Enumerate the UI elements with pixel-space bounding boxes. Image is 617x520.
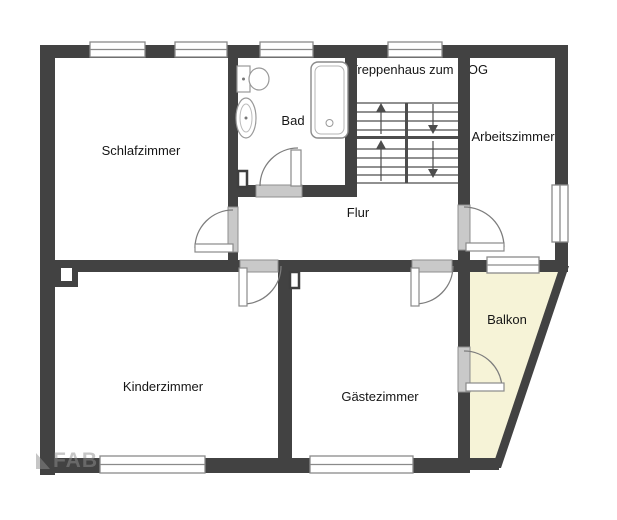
window-kinderzimmer: [100, 456, 205, 473]
staircase: [357, 103, 458, 183]
wall-center-right-column: [458, 45, 470, 473]
floorplan: Schlafzimmer Bad Treppenhaus zum 1.OG Ar…: [0, 0, 617, 520]
door-panel: [256, 185, 302, 197]
room-label-arbeitszimmer: Arbeitszimmer: [471, 129, 555, 144]
room-label-balkon: Balkon: [487, 312, 527, 327]
door-leaf: [291, 150, 301, 186]
door-kinderzimmer: [239, 260, 281, 306]
arrow-up-icon: [376, 103, 386, 181]
window-schlafzimmer-1: [90, 42, 145, 57]
wall-left: [40, 45, 55, 475]
door-leaf: [411, 268, 419, 306]
sink-icon: [236, 98, 256, 138]
door-arc: [195, 210, 233, 248]
wall-balcony-bottom: [467, 458, 499, 470]
window-treppenhaus: [388, 42, 442, 57]
toilet-icon: [237, 66, 269, 92]
niche-flur: [238, 171, 247, 187]
floorplan-drawing: Schlafzimmer Bad Treppenhaus zum 1.OG Ar…: [0, 0, 617, 520]
door-leaf: [195, 244, 233, 252]
room-label-flur: Flur: [347, 205, 370, 220]
wall-kinder-gaeste: [278, 263, 292, 458]
bathtub-icon: [311, 62, 348, 138]
room-label-gaestezimmer: Gästezimmer: [341, 389, 419, 404]
niche-gaestezimmer: [290, 272, 299, 288]
door-leaf: [239, 268, 247, 306]
window-gaestezimmer: [310, 456, 413, 473]
room-label-schlafzimmer: Schlafzimmer: [102, 143, 181, 158]
door-arbeitszimmer: [458, 205, 504, 251]
room-label-kinderzimmer: Kinderzimmer: [123, 379, 204, 394]
door-leaf: [466, 243, 504, 251]
window-bad: [260, 42, 313, 57]
window-arbeitszimmer: [552, 185, 568, 242]
door-leaf: [466, 383, 504, 391]
window-schlafzimmer-2: [175, 42, 227, 57]
room-label-bad: Bad: [281, 113, 304, 128]
window-balkon: [487, 257, 539, 273]
door-bad: [256, 148, 302, 197]
door-gaestezimmer: [411, 260, 453, 306]
door-schlafzimmer: [195, 207, 238, 252]
chimney-icon: [55, 262, 78, 287]
